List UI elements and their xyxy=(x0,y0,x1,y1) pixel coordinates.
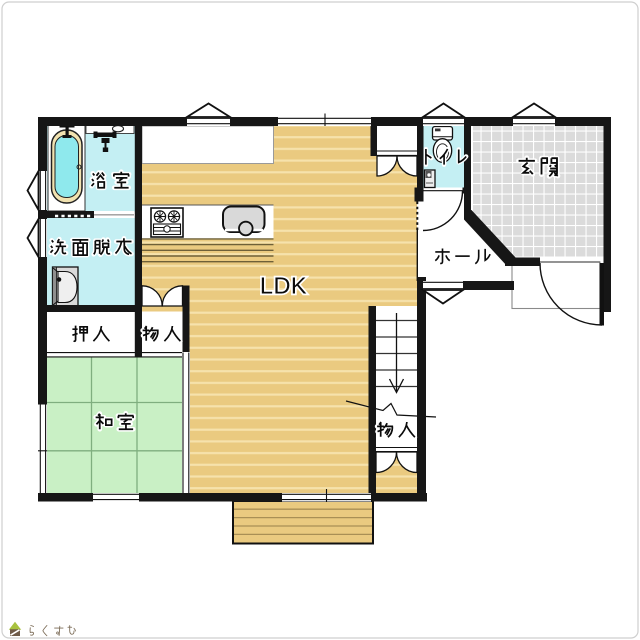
svg-text:LDK: LDK xyxy=(260,273,307,299)
